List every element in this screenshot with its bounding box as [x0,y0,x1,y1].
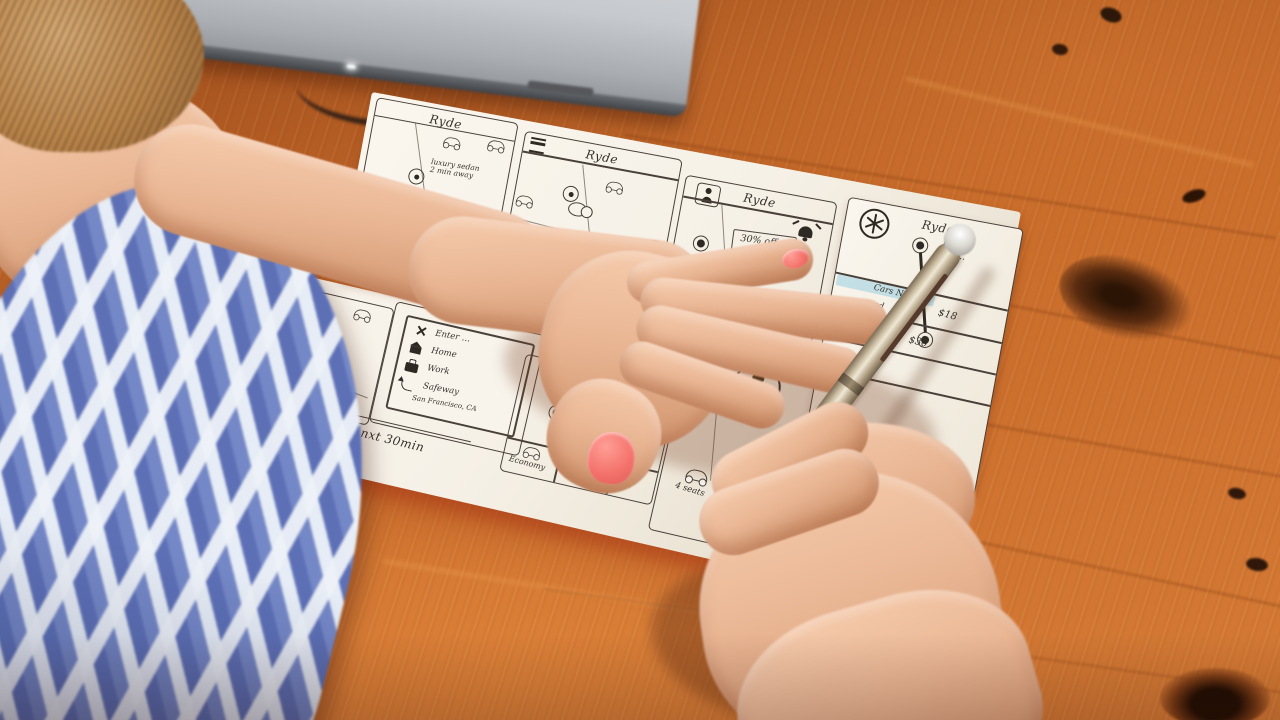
favorite-home-label: Home [430,346,457,360]
car-icon [606,181,624,193]
map-pin-icon [561,185,580,204]
bell-icon [798,225,814,238]
car-icon [523,446,542,458]
pen-band [837,372,864,396]
home-icon [409,345,421,354]
eta-note: luxury sedan 2 min away [429,158,483,182]
wood-knot [1160,668,1270,720]
car-icon [443,136,461,148]
car-icon [487,139,505,151]
close-icon [414,324,427,337]
photo-scene: …ant/ 6pm luxury sedan 2 min, away Enter… [0,0,1280,720]
favorite-safeway-address: San Francisco, CA [412,394,478,413]
gear-icon [857,206,892,241]
search-row-label: Enter … [434,329,471,345]
car-icon [516,194,534,206]
return-arrow-icon [400,379,414,391]
car-icon [353,308,372,320]
app-title: Ryde [428,112,463,132]
favorite-safeway-label: Safeway [422,381,459,397]
favorite-work-label: Work [426,363,450,377]
map-pin-icon [692,234,711,253]
briefcase-icon [404,362,419,374]
